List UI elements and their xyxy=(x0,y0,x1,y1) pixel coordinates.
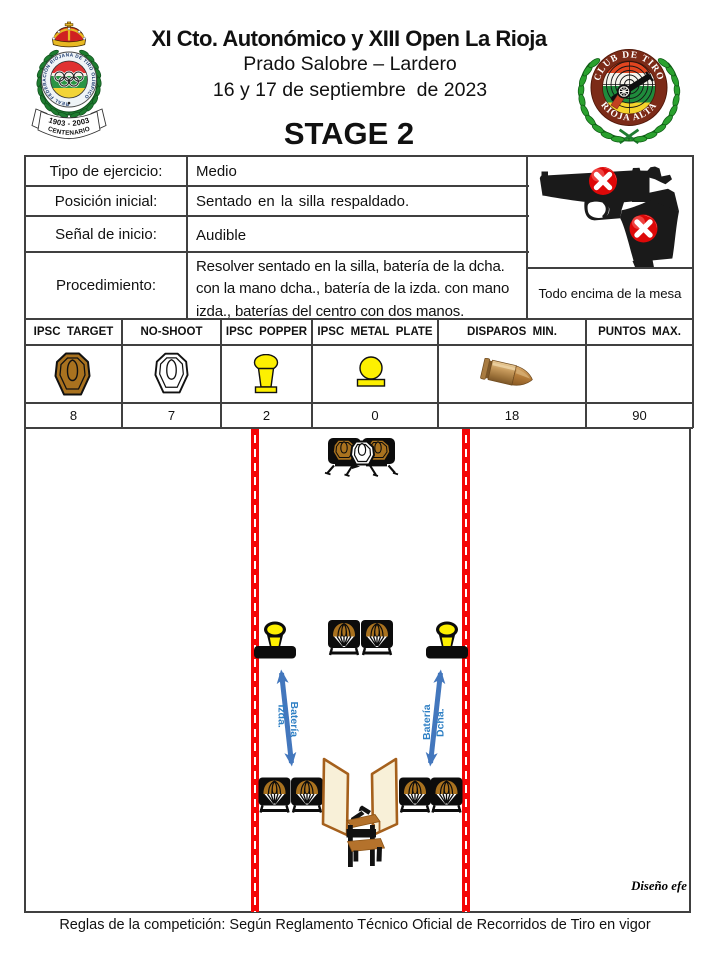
svg-text:Diseño efe: Diseño efe xyxy=(630,879,687,893)
svg-text:Izda.: Izda. xyxy=(276,705,288,728)
svg-text:Dcha.: Dcha. xyxy=(435,708,447,737)
svg-text:Batería: Batería xyxy=(288,702,300,738)
svg-text:Batería: Batería xyxy=(421,704,433,740)
